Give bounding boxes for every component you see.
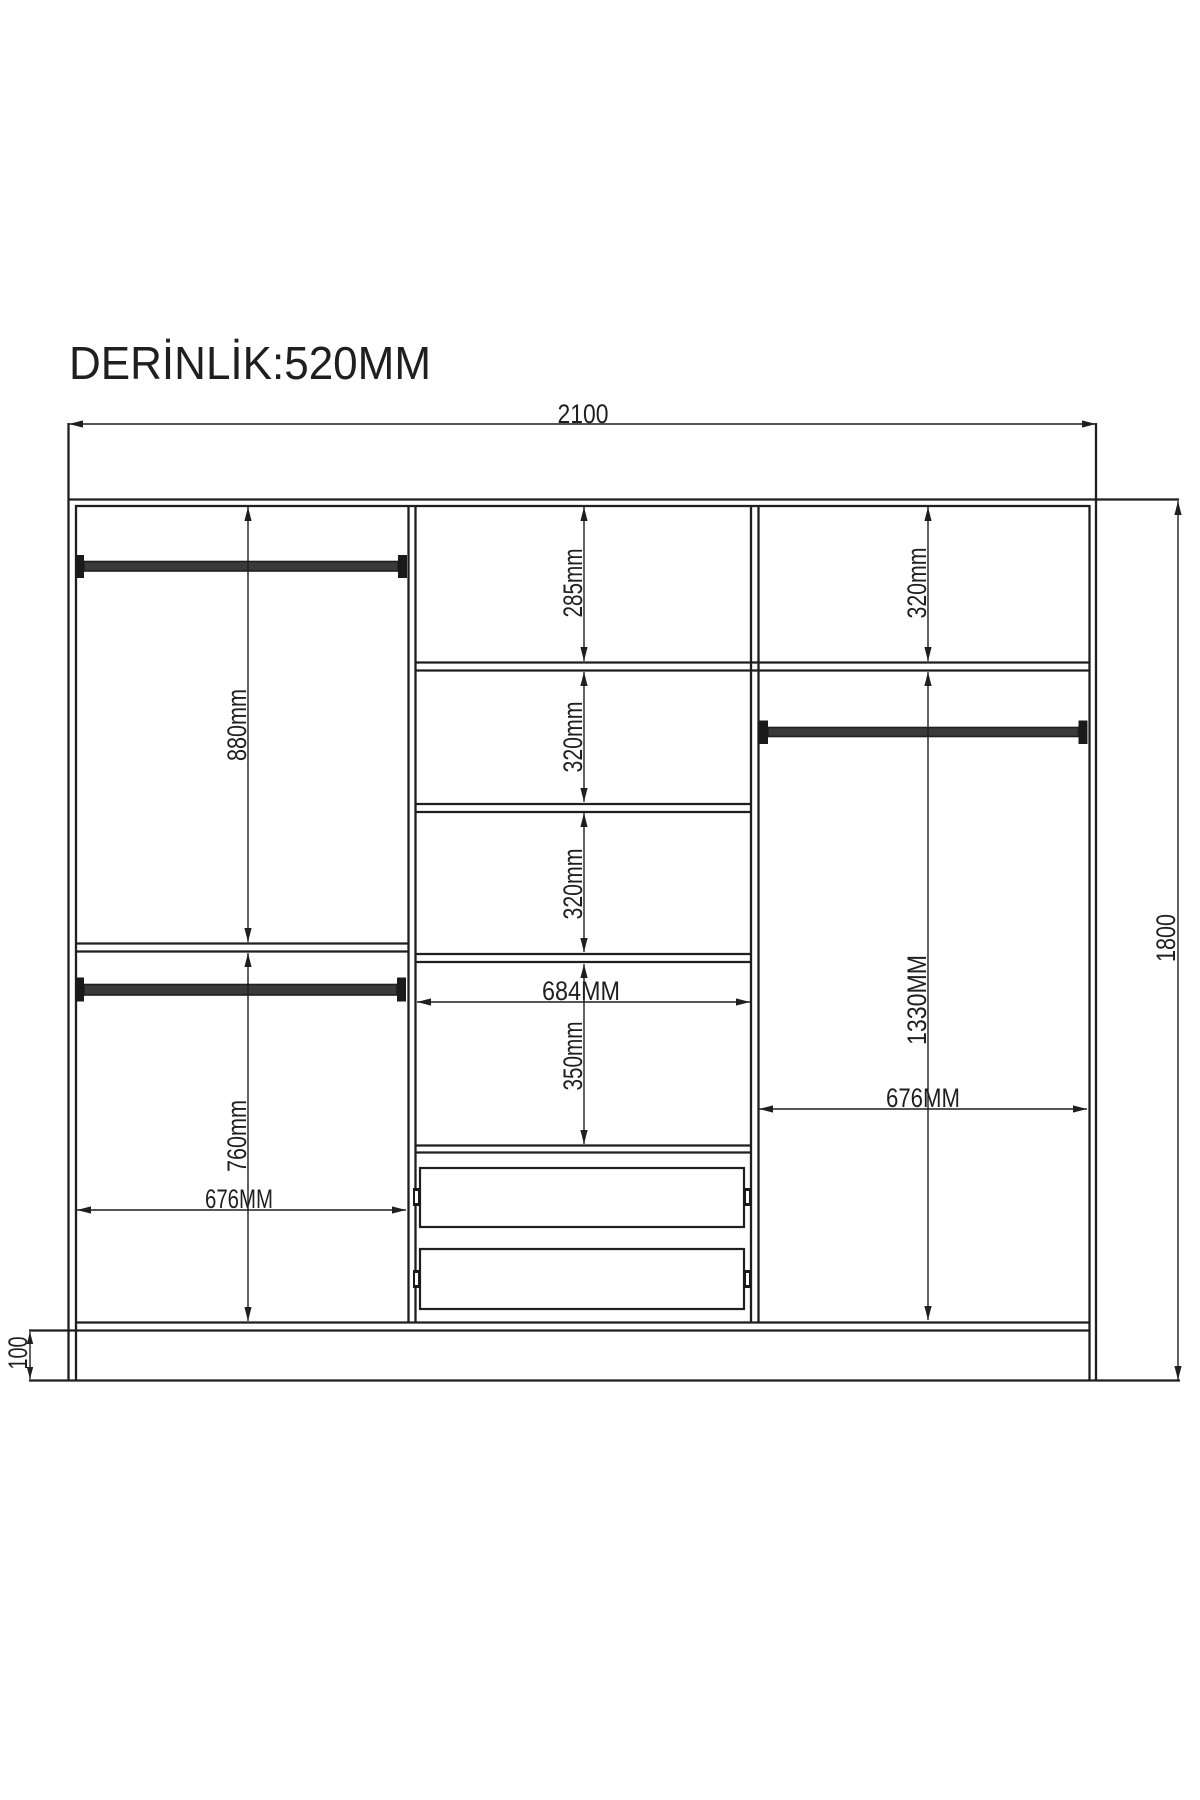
svg-text:100: 100	[3, 1337, 33, 1370]
svg-text:320mm: 320mm	[558, 702, 588, 773]
svg-text:676MM: 676MM	[205, 1184, 273, 1214]
svg-text:350mm: 350mm	[558, 1022, 588, 1091]
svg-text:320mm: 320mm	[902, 548, 932, 619]
svg-text:2100: 2100	[558, 399, 609, 429]
svg-text:285mm: 285mm	[558, 549, 588, 618]
svg-text:880mm: 880mm	[222, 689, 252, 761]
svg-text:DERİNLİK:520MM: DERİNLİK:520MM	[69, 337, 431, 389]
svg-text:684MM: 684MM	[542, 976, 620, 1006]
svg-text:760mm: 760mm	[222, 1100, 252, 1172]
svg-text:1800: 1800	[1151, 914, 1181, 962]
svg-text:320mm: 320mm	[558, 849, 588, 920]
svg-text:1330MM: 1330MM	[902, 955, 932, 1045]
svg-text:676MM: 676MM	[886, 1083, 960, 1113]
